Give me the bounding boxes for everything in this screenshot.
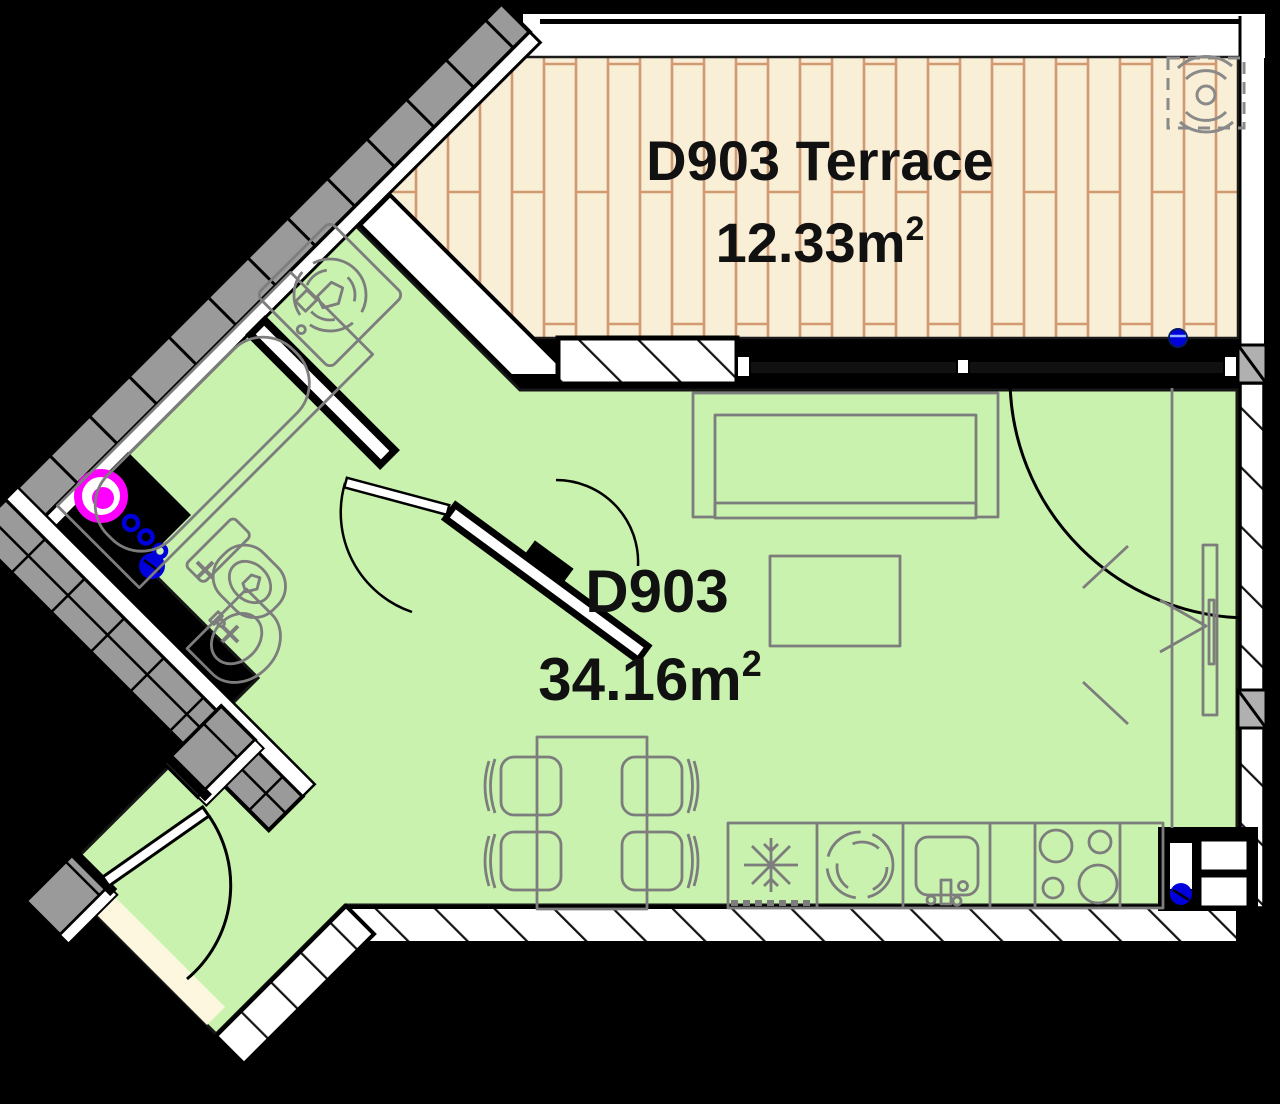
terrace-area-sup: 2: [906, 210, 925, 248]
main-area-unit: m: [688, 646, 741, 713]
terrace-area-value: 12.33: [716, 211, 856, 274]
terrace-area: 12.33m2: [716, 210, 925, 274]
drain-point-icon: [1169, 329, 1187, 347]
floor-plan-canvas: D903 Terrace 12.33m2 D903 34.16m2: [0, 0, 1280, 1104]
window-wall-piece: [558, 338, 737, 384]
terrace-label: D903 Terrace: [646, 129, 994, 192]
bottom-wall: [349, 907, 1238, 943]
terrace-wood-floor: [373, 57, 1238, 338]
service-shaft: [1158, 827, 1258, 911]
floor-plan-svg: D903 Terrace 12.33m2 D903 34.16m2: [0, 0, 1280, 1104]
main-area-sup: 2: [742, 643, 762, 684]
main-area-value: 34.16: [538, 646, 688, 713]
terrace-railing: [523, 14, 1265, 58]
terrace-area-unit: m: [856, 211, 906, 274]
main-room-label: D903: [585, 558, 728, 625]
main-room-area: 34.16m2: [538, 643, 762, 713]
refrigerator-icon: [744, 838, 798, 892]
